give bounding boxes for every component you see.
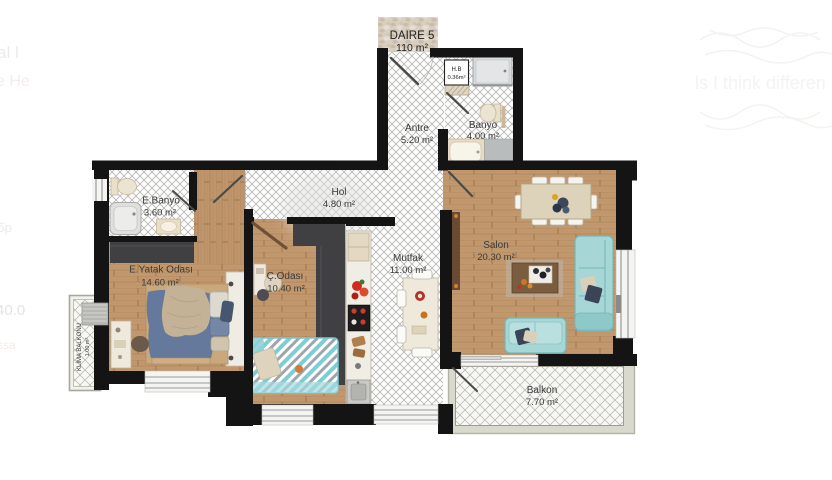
svg-text:14.60 m²: 14.60 m² [141, 278, 179, 289]
svg-text:бр: бр [0, 220, 12, 235]
svg-text:H.B: H.B [451, 67, 461, 73]
svg-text:7.70 m²: 7.70 m² [526, 397, 558, 408]
svg-text:40.0: 40.0 [0, 302, 25, 319]
svg-text:11.00 m²: 11.00 m² [390, 265, 427, 276]
svg-text:DAIRE 5: DAIRE 5 [390, 30, 435, 42]
svg-text:10.40 m²: 10.40 m² [267, 284, 305, 295]
svg-text:1.00 m²: 1.00 m² [85, 338, 91, 357]
svg-text:Banyo: Banyo [469, 120, 498, 131]
svg-text:20.30 m²: 20.30 m² [477, 252, 515, 263]
svg-text:0.36m²: 0.36m² [447, 75, 465, 81]
svg-text:al l: al l [0, 43, 19, 62]
svg-text:ls I think differen: ls I think differen [695, 73, 826, 93]
svg-text:Salon: Salon [483, 240, 509, 251]
svg-text:Hol: Hol [331, 187, 346, 198]
svg-text:4.00 m²: 4.00 m² [467, 131, 499, 142]
svg-text:5.20 m²: 5.20 m² [401, 135, 433, 146]
svg-text:3.60 m²: 3.60 m² [144, 208, 176, 219]
svg-text:Ç.Odası: Ç.Odası [267, 271, 304, 282]
svg-text:E.Yatak Odası: E.Yatak Odası [129, 265, 193, 276]
svg-text:4.80 m²: 4.80 m² [323, 199, 355, 210]
svg-text:Antre: Antre [405, 123, 429, 134]
svg-text:ssa: ssa [0, 338, 16, 352]
svg-text:Balkon: Balkon [527, 385, 558, 396]
svg-text:KLİMA BALKONU: KLİMA BALKONU [76, 323, 83, 371]
svg-text:Mutfak: Mutfak [393, 253, 424, 264]
svg-text:е Не: е Не [0, 73, 30, 90]
svg-text:E.Banyo: E.Banyo [142, 196, 180, 207]
